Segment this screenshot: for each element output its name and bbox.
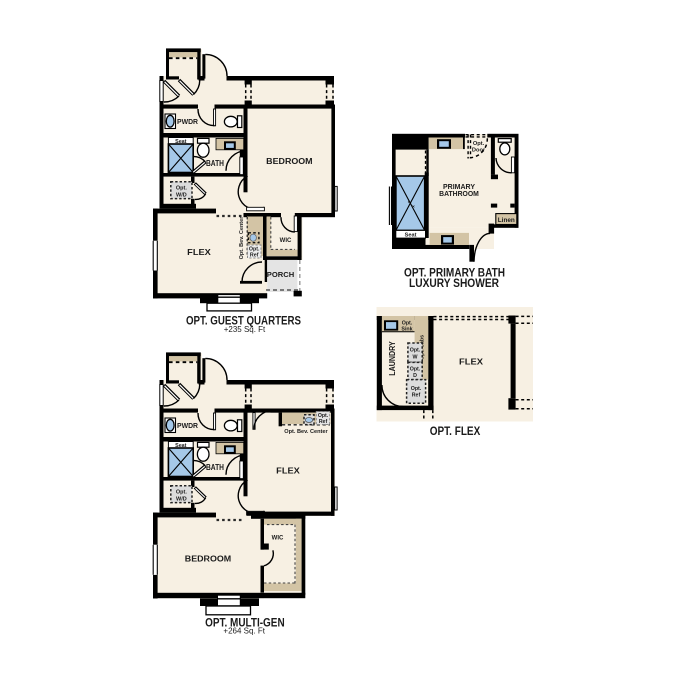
svg-text:Ref: Ref (412, 393, 421, 399)
svg-text:WIC: WIC (280, 238, 292, 244)
svg-text:LUXURY SHOWER: LUXURY SHOWER (409, 276, 499, 290)
svg-text:+235 Sq. Ft: +235 Sq. Ft (224, 325, 266, 334)
svg-text:W: W (413, 354, 418, 360)
svg-text:Ref: Ref (319, 419, 328, 425)
svg-text:Opt. Bev. Center: Opt. Bev. Center (239, 216, 245, 260)
svg-text:OPT. FLEX: OPT. FLEX (430, 424, 481, 438)
svg-text:×: × (408, 200, 411, 205)
svg-text:WIC: WIC (272, 536, 284, 542)
svg-text:FLEX: FLEX (187, 247, 211, 257)
svg-text:D: D (413, 373, 417, 379)
svg-text:LAUNDRY: LAUNDRY (388, 341, 397, 376)
svg-text:PORCH: PORCH (267, 270, 294, 279)
svg-text:Opt.: Opt. (318, 413, 329, 419)
svg-text:Seat: Seat (405, 233, 417, 239)
svg-text:Opt.: Opt. (473, 141, 485, 147)
svg-text:×: × (412, 204, 415, 209)
svg-text:BEDROOM: BEDROOM (266, 156, 312, 166)
svg-text:+264 Sq. Ft: +264 Sq. Ft (223, 626, 265, 635)
svg-text:FLEX: FLEX (459, 357, 483, 367)
svg-text:Ref: Ref (250, 253, 259, 259)
svg-text:BEDROOM: BEDROOM (185, 554, 231, 564)
svg-text:BATHROOM: BATHROOM (439, 189, 479, 198)
svg-text:Door: Door (472, 148, 486, 154)
svg-text:Sink: Sink (401, 326, 412, 332)
svg-text:FLEX: FLEX (276, 466, 300, 476)
svg-text:Linen: Linen (498, 217, 515, 224)
svg-text:Opt.: Opt. (411, 386, 422, 392)
svg-text:Opt.: Opt. (249, 246, 260, 252)
svg-text:Opt. Bev. Center: Opt. Bev. Center (284, 429, 328, 435)
svg-text:Opt.: Opt. (410, 348, 421, 354)
svg-text:Opt.: Opt. (410, 366, 421, 372)
